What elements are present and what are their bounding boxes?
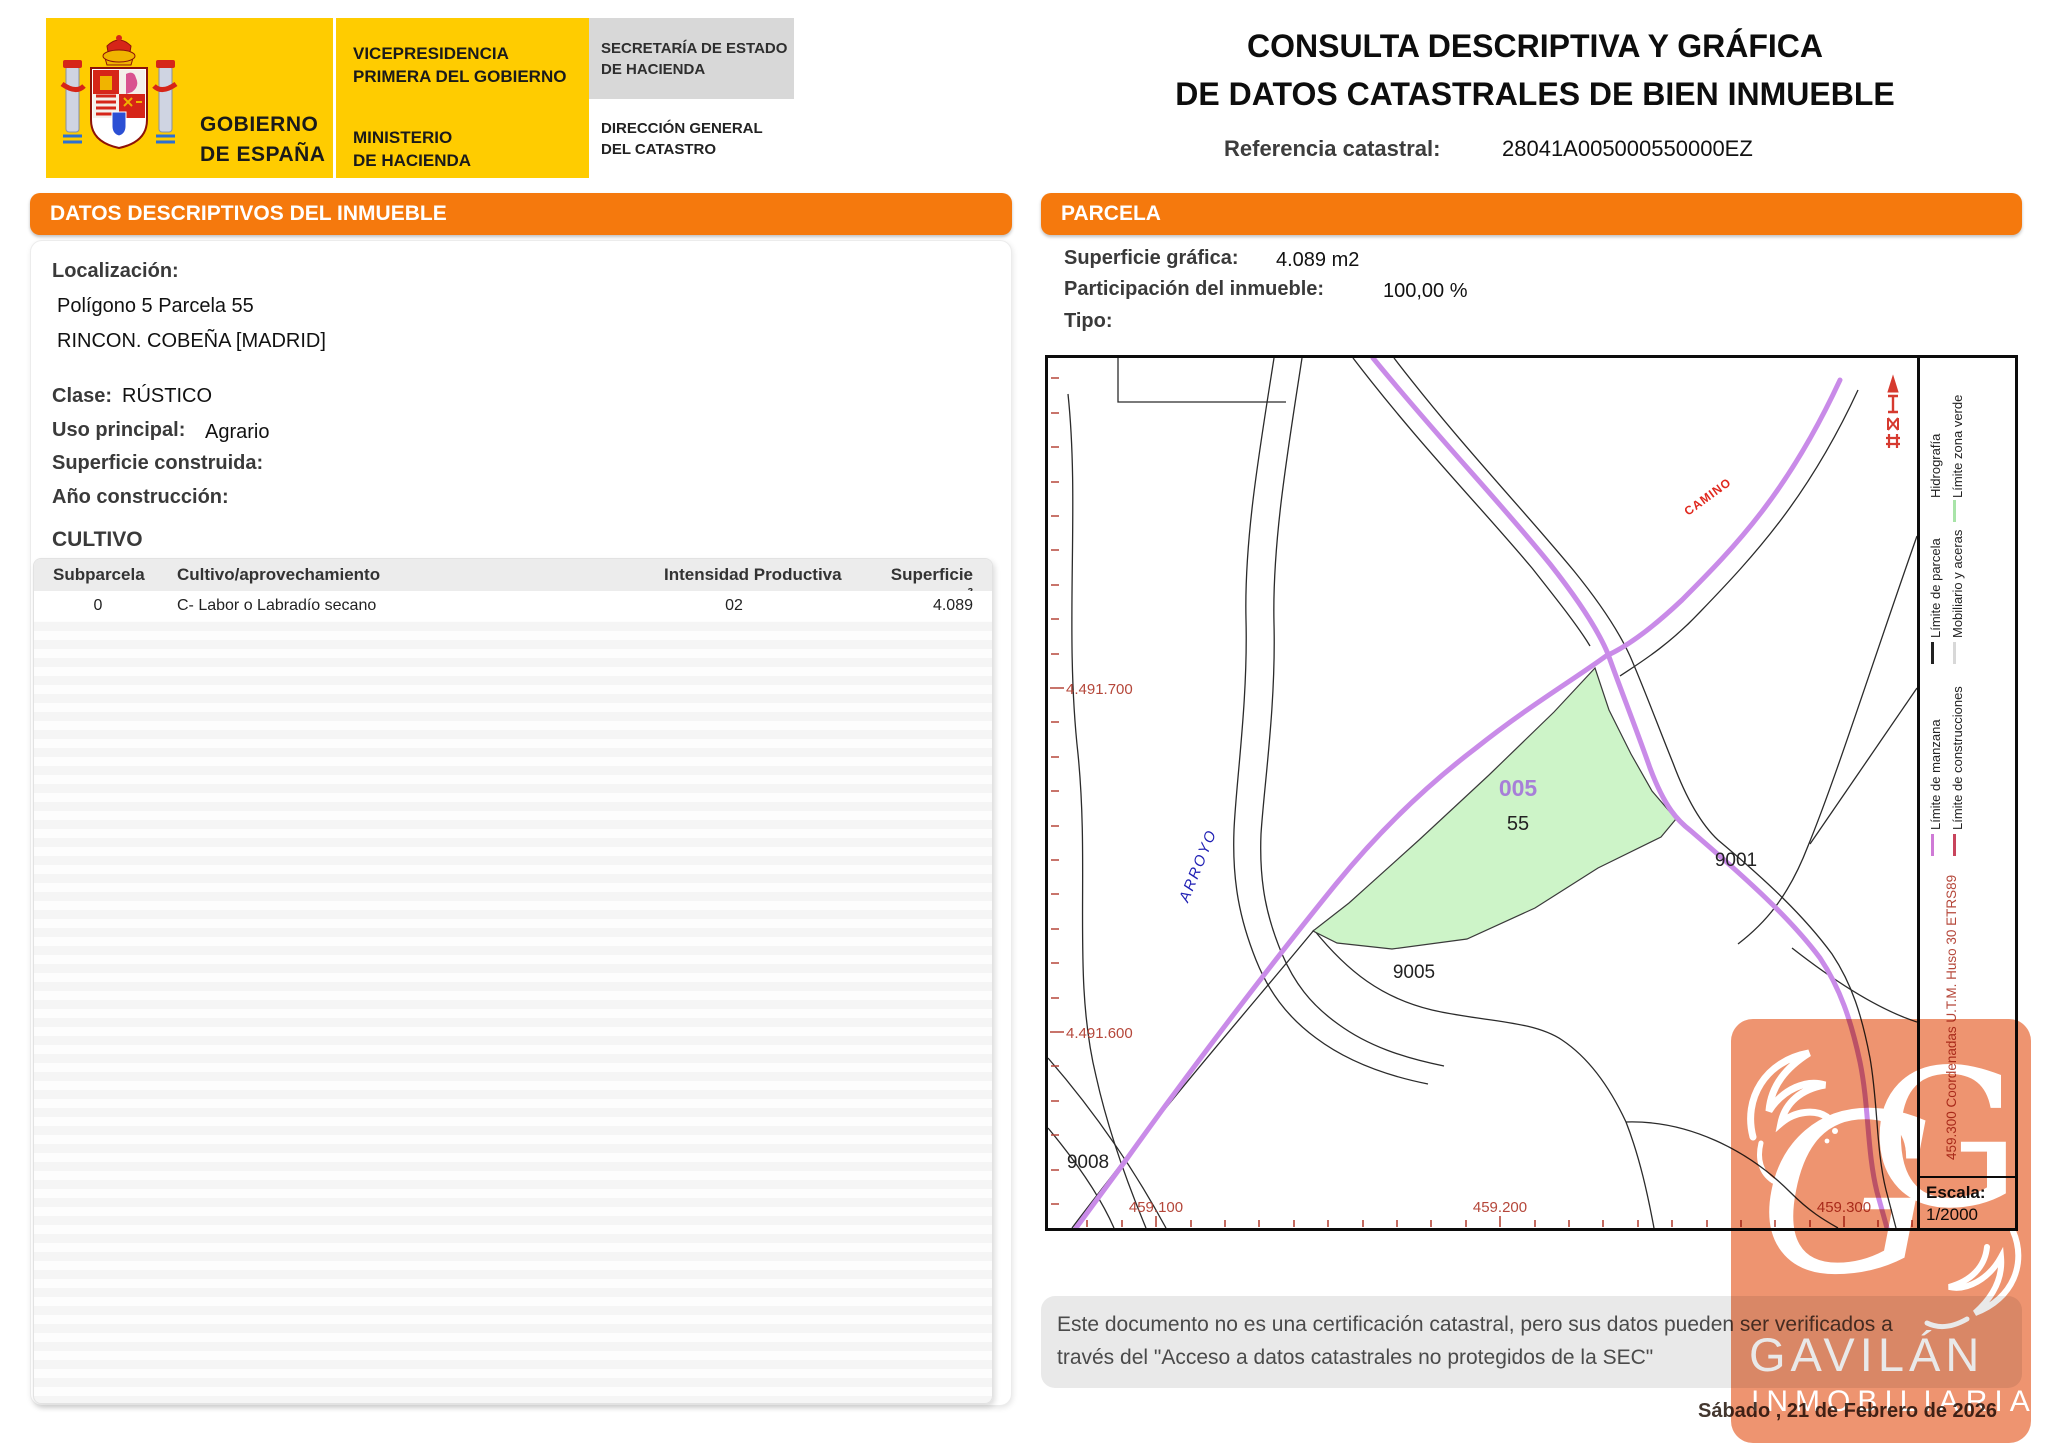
col-subparcela: Subparcela (53, 565, 145, 585)
left-panel-banner-label: DATOS DESCRIPTIVOS DEL INMUEBLE (50, 202, 447, 226)
page-title-line2: DE DATOS CATASTRALES DE BIEN INMUEBLE (1110, 70, 1960, 118)
referencia-catastral-value: 28041A005000550000EZ (1502, 136, 1753, 162)
secretaria-text: SECRETARÍA DE ESTADO DE HACIENDA (601, 38, 787, 80)
gobierno-line2: DE ESPAÑA (200, 140, 325, 170)
parcel-9005-label: 9005 (1393, 962, 1435, 983)
vicepresidencia-line2: PRIMERA DEL GOBIERNO (353, 65, 566, 88)
vicepresidencia-text: VICEPRESIDENCIA PRIMERA DEL GOBIERNO (353, 42, 566, 88)
government-logo-box: GOBIERNO DE ESPAÑA (46, 18, 333, 178)
secretaria-box: SECRETARÍA DE ESTADO DE HACIENDA (589, 18, 794, 99)
legend-label: Límite de manzana (1928, 719, 1943, 830)
parcel-number-label: 55 (1507, 813, 1529, 835)
legend-label: Límite de construcciones (1950, 686, 1965, 830)
direccion-line2: DEL CATASTRO (601, 139, 763, 160)
legend-swatch-zona-verde (1953, 500, 1956, 522)
direccion-line1: DIRECCIÓN GENERAL (601, 118, 763, 139)
legend-item-limite-manzana: Límite de manzana (1928, 719, 1943, 830)
clase-label: Clase: (52, 385, 112, 408)
cell-superficie: 4.089 (873, 597, 973, 615)
uso-principal-label: Uso principal: (52, 419, 185, 442)
page-title-line1: CONSULTA DESCRIPTIVA Y GRÁFICA (1110, 22, 1960, 70)
uso-principal-value: Agrario (205, 421, 269, 444)
cell-cultivo: C- Labor o Labradío secano (177, 597, 376, 615)
spain-coat-of-arms-icon (60, 32, 178, 164)
legend-swatch-limite-parcela (1931, 642, 1934, 664)
page-title: CONSULTA DESCRIPTIVA Y GRÁFICA DE DATOS … (1110, 22, 1960, 118)
vicepresidencia-line1: VICEPRESIDENCIA (353, 42, 566, 65)
ministerio-line1: MINISTERIO (353, 126, 471, 149)
col-intensidad: Intensidad Productiva (664, 565, 842, 585)
tipo-label: Tipo: (1064, 310, 1113, 333)
direccion-catastro-text: DIRECCIÓN GENERAL DEL CATASTRO (601, 118, 763, 160)
gobierno-line1: GOBIERNO (200, 110, 325, 140)
parcel-9001-label: 9001 (1715, 850, 1757, 871)
participacion-value: 100,00 % (1383, 280, 1468, 303)
ministerio-text: MINISTERIO DE HACIENDA (353, 126, 471, 172)
watermark-subtitle: INMOBILIARIA (1751, 1385, 2031, 1419)
ministerio-line2: DE HACIENDA (353, 149, 471, 172)
parcel-code-label: 005 (1499, 775, 1538, 801)
superficie-construida-label: Superficie construida: (52, 452, 263, 475)
legend-item-zona-verde: Límite zona verde (1950, 395, 1965, 498)
monogram-g-small: G (1869, 1029, 2021, 1250)
camino-label: CAMINO (1682, 475, 1734, 518)
legend-swatch-limite-construcciones (1953, 834, 1956, 856)
clase-value: RÚSTICO (122, 385, 212, 408)
gobierno-title: GOBIERNO DE ESPAÑA (200, 110, 325, 170)
cadastral-document-page: GOBIERNO DE ESPAÑA VICEPRESIDENCIA PRIME… (0, 0, 2048, 1447)
legend-label: Hidrografía (1928, 434, 1943, 498)
legend-label: Mobiliario y aceras (1950, 530, 1965, 638)
legend-item-hidrografia: Hidrografía (1928, 434, 1943, 498)
ministry-box: VICEPRESIDENCIA PRIMERA DEL GOBIERNO MIN… (336, 18, 589, 178)
participacion-label: Participación del inmueble: (1064, 278, 1324, 301)
cultivo-table-header: Subparcela Cultivo/aprovechamiento Inten… (34, 559, 993, 591)
cell-subparcela: 0 (53, 597, 143, 615)
localizacion-line2: RINCON. COBEÑA [MADRID] (57, 330, 326, 353)
y-coordinate-label-bottom: 4.491.600 (1066, 1025, 1133, 1042)
subject-parcel-shape (1313, 668, 1676, 949)
localizacion-line1: Polígono 5 Parcela 55 (57, 295, 254, 318)
north-marker-icon (1886, 376, 1900, 448)
referencia-catastral-label: Referencia catastral: (1224, 136, 1440, 162)
y-coordinate-label-top: 4.491.700 (1066, 681, 1133, 698)
superficie-grafica-value: 4.089 m2 (1276, 249, 1359, 272)
cultivo-title: CULTIVO (52, 528, 143, 552)
cultivo-table: Subparcela Cultivo/aprovechamiento Inten… (33, 558, 993, 1404)
arroyo-label: ARROYO (1176, 827, 1221, 906)
secretaria-line1: SECRETARÍA DE ESTADO (601, 38, 787, 59)
right-panel-banner: PARCELA (1041, 193, 2022, 235)
legend-item-limite-parcela: Límite de parcela (1928, 538, 1943, 638)
legend-swatch-mobiliario (1953, 642, 1956, 664)
legend-item-limite-construcciones: Límite de construcciones (1950, 686, 1965, 830)
x-coordinate-label-1: 459.100 (1129, 1199, 1183, 1216)
legend-label: Límite zona verde (1950, 395, 1965, 498)
parcel-9008-label: 9008 (1067, 1152, 1109, 1173)
secretaria-line2: DE HACIENDA (601, 59, 787, 80)
localizacion-label: Localización: (52, 260, 179, 283)
cell-intensidad: 02 (664, 597, 804, 615)
col-cultivo: Cultivo/aprovechamiento (177, 565, 380, 585)
right-panel-banner-label: PARCELA (1061, 202, 1161, 226)
gavilan-watermark: G G GAVILÁN INMOBILIARIA (1731, 1019, 2031, 1443)
legend-swatch-limite-manzana (1931, 834, 1934, 856)
table-row: 0 C- Labor o Labradío secano 02 4.089 (34, 591, 993, 621)
anio-construccion-label: Año construcción: (52, 486, 229, 509)
superficie-grafica-label: Superficie gráfica: (1064, 247, 1239, 270)
watermark-brand: GAVILÁN (1749, 1327, 1984, 1382)
legend-label: Límite de parcela (1928, 538, 1943, 638)
legend-item-mobiliario: Mobiliario y aceras (1950, 530, 1965, 638)
left-panel-banner: DATOS DESCRIPTIVOS DEL INMUEBLE (30, 193, 1012, 235)
x-coordinate-label-2: 459.200 (1473, 1199, 1527, 1216)
